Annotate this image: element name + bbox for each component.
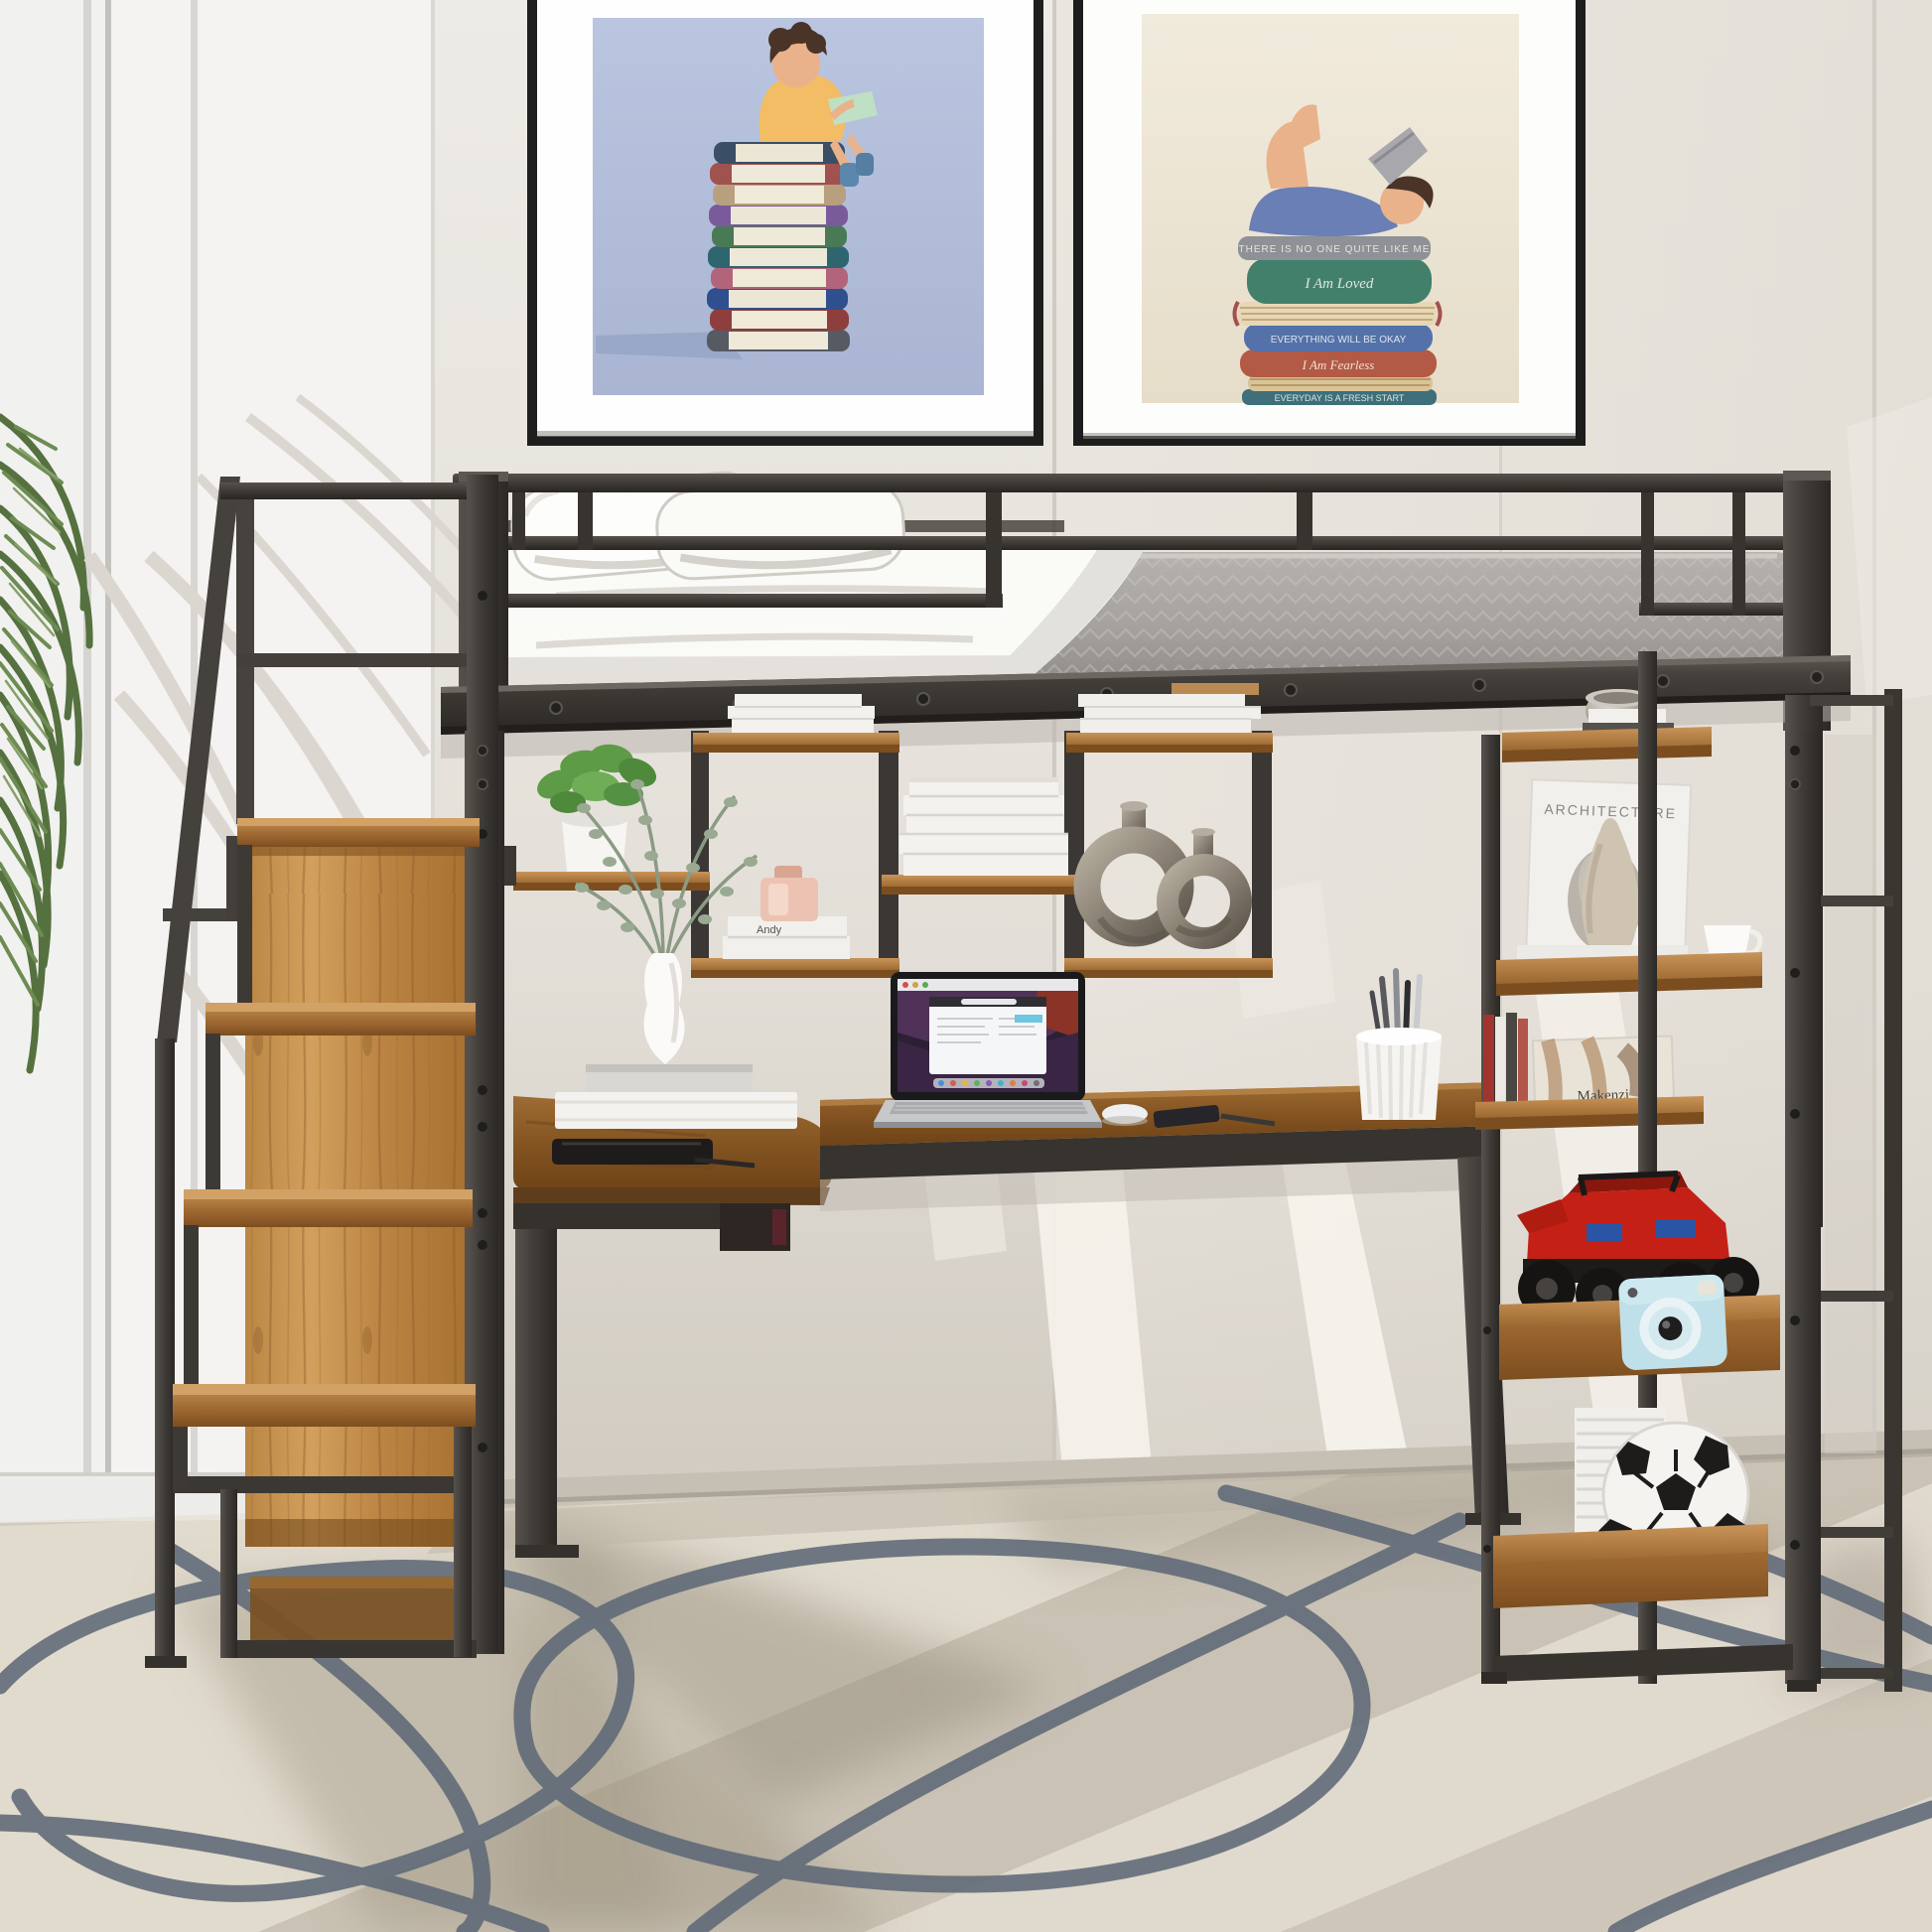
svg-text:I Am Loved: I Am Loved — [1305, 276, 1374, 292]
svg-text:Andy: Andy — [757, 924, 782, 936]
svg-text:THERE IS NO ONE QUITE LIKE ME: THERE IS NO ONE QUITE LIKE ME — [1239, 244, 1431, 255]
svg-text:EVERYTHING WILL BE OKAY: EVERYTHING WILL BE OKAY — [1271, 335, 1407, 345]
svg-text:EVERYDAY IS A FRESH START: EVERYDAY IS A FRESH START — [1275, 393, 1405, 403]
svg-text:I Am Fearless: I Am Fearless — [1302, 357, 1375, 372]
